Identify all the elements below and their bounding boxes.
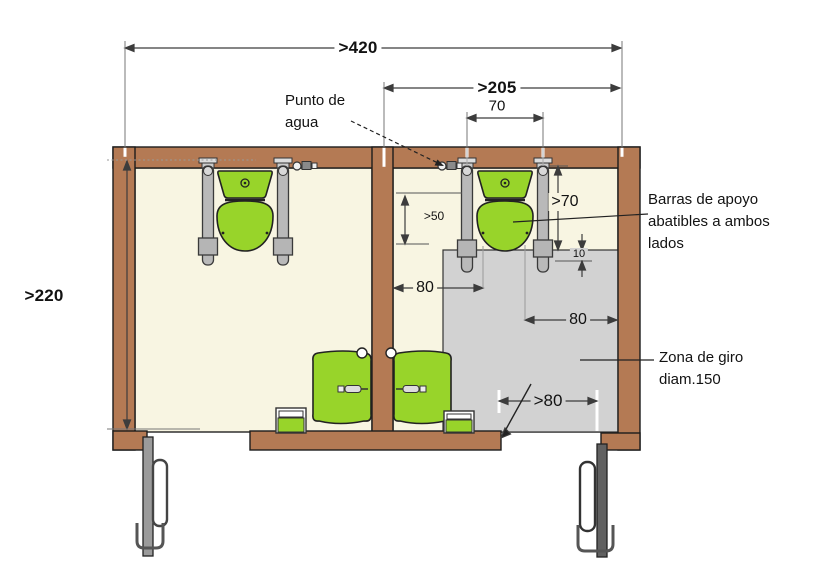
left-room-water-point-icon xyxy=(293,162,317,171)
left-room-door xyxy=(137,437,167,556)
dim-grab-bar-spacing: 70 xyxy=(489,98,506,115)
wall-right xyxy=(618,147,640,450)
dim-toilet-axis-right: 80 xyxy=(566,311,590,329)
dim-overall-depth: >220 xyxy=(24,286,63,306)
left-sink-supply-point xyxy=(357,348,367,358)
dim-grab-bar-length: >70 xyxy=(548,193,581,211)
right-room-bin xyxy=(444,411,474,433)
right-room-door xyxy=(578,444,613,557)
dim-offset-10: 10 xyxy=(570,248,588,260)
left-door-handle xyxy=(153,460,167,526)
right-sink-supply-point xyxy=(386,348,396,358)
wall-partition xyxy=(372,147,393,432)
right-door-handle xyxy=(580,462,595,531)
right-room-sink xyxy=(394,351,451,424)
dim-clearance-50: >50 xyxy=(424,209,444,223)
wall-bottom-center xyxy=(250,431,501,450)
left-room-toilet xyxy=(217,171,273,251)
dim-room-width: >205 xyxy=(473,78,520,98)
dim-toilet-axis-left: 80 xyxy=(413,279,437,297)
dim-door-clear-width: >80 xyxy=(531,391,566,411)
water-point-label: Punto de agua xyxy=(285,90,370,134)
right-room-toilet xyxy=(477,171,533,251)
left-room-sink xyxy=(313,351,371,424)
grab-bars-label: Barras de apoyo abatibles a ambos lados xyxy=(648,189,800,255)
wall-bottom-left-stub xyxy=(113,431,147,450)
wall-left xyxy=(113,147,135,450)
accessible-toilet-floor-plan: >420 >205 70 >220 >50 >70 10 80 80 >80 P… xyxy=(0,0,818,582)
dim-overall-width: >420 xyxy=(334,38,381,58)
turning-zone-label: Zona de giro diam.150 xyxy=(659,347,769,391)
plan-drawing xyxy=(0,0,818,582)
left-room-bin xyxy=(276,408,306,433)
